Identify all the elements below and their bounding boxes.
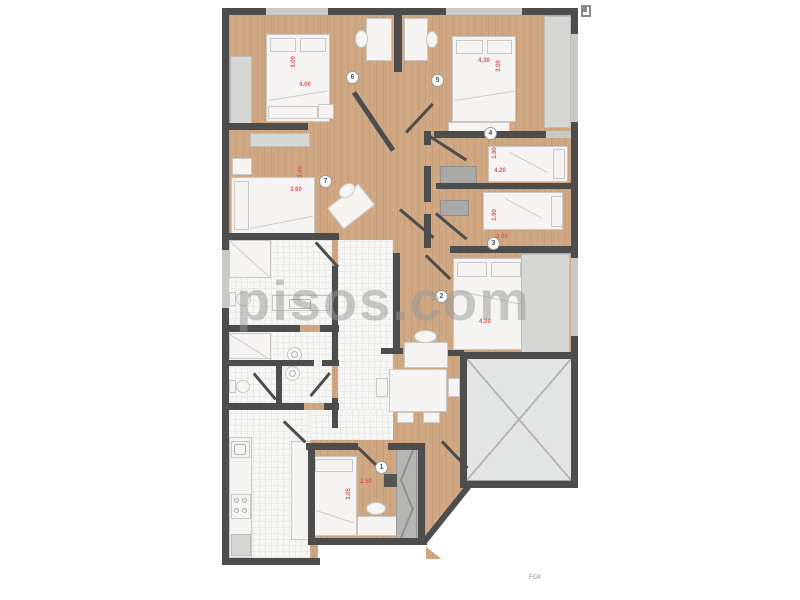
- window: [266, 8, 328, 15]
- washbasin: [285, 366, 300, 381]
- wall: [450, 246, 572, 253]
- wall: [222, 123, 308, 130]
- toilet-tank: [229, 292, 236, 306]
- window: [571, 258, 578, 336]
- wall: [418, 443, 425, 545]
- room-6-number-badge: 6: [346, 71, 359, 84]
- chair: [448, 378, 460, 397]
- pillow: [551, 196, 563, 227]
- wardrobe: [230, 56, 252, 124]
- window: [571, 34, 578, 122]
- room-5-width-dim: 4.30: [471, 57, 497, 65]
- wall: [222, 558, 320, 565]
- desk: [404, 18, 428, 61]
- room-7-width-dim: 3.60: [283, 186, 309, 194]
- window: [446, 8, 522, 15]
- room-7-depth-dim: 3.45: [297, 159, 305, 185]
- nightstand: [232, 158, 252, 175]
- window: [546, 131, 571, 138]
- wardrobe: [396, 445, 417, 539]
- chair: [397, 412, 414, 423]
- chair: [366, 502, 386, 515]
- kitchen-sink: [231, 441, 250, 458]
- pillow: [234, 181, 249, 230]
- wall: [388, 443, 422, 450]
- room-4-depth-dim: 1.90: [491, 140, 499, 166]
- outside-area: [222, 565, 578, 600]
- room-1-number-badge: 1: [375, 461, 388, 474]
- chair: [423, 412, 440, 423]
- pillow: [315, 459, 353, 472]
- dining-table: [389, 369, 447, 412]
- wall: [436, 183, 572, 189]
- ottoman: [318, 104, 334, 119]
- wall: [394, 8, 402, 72]
- room-5-depth-dim: 3.00: [495, 53, 503, 79]
- north-mark-icon: [581, 5, 591, 17]
- room-4-number-badge: 4: [484, 127, 497, 140]
- pillow: [553, 149, 565, 179]
- wall: [222, 403, 304, 410]
- wall: [308, 538, 427, 545]
- terrace-lightwell: [466, 358, 572, 481]
- wall: [324, 403, 339, 410]
- toilet: [236, 380, 250, 393]
- window: [222, 250, 229, 308]
- kitchen-cabinet: [231, 534, 251, 556]
- room-5-number-badge: 5: [431, 74, 444, 87]
- cooktop: [231, 494, 251, 519]
- wall: [306, 443, 358, 450]
- wall: [448, 350, 464, 356]
- room-6-width-dim: 4.00: [292, 81, 318, 89]
- room-7-number-badge: 7: [319, 175, 332, 188]
- plan-code-label: FG4: [529, 575, 541, 581]
- chair: [426, 31, 438, 48]
- shower: [229, 333, 271, 359]
- desk: [357, 516, 399, 536]
- wall: [424, 166, 431, 202]
- wall: [222, 233, 339, 240]
- bed-bench: [268, 106, 318, 119]
- toilet-tank: [229, 380, 236, 393]
- room-4-width-dim: 4.20: [487, 167, 513, 175]
- pillow: [456, 40, 483, 54]
- tv-unit: [384, 474, 397, 487]
- room-3-depth-dim: 1.90: [491, 202, 499, 228]
- room-3-width-dim: 3.00: [489, 233, 515, 241]
- wall: [322, 360, 339, 366]
- wardrobe: [544, 16, 571, 128]
- desk: [404, 342, 448, 368]
- wall: [308, 450, 315, 545]
- wall: [460, 352, 572, 359]
- closet: [440, 200, 469, 216]
- wall: [222, 360, 314, 366]
- pillow: [487, 40, 512, 54]
- hallway-floor-2: [310, 410, 393, 440]
- room-6-depth-dim: 3.00: [290, 49, 298, 75]
- wardrobe: [250, 133, 310, 147]
- desk: [366, 18, 392, 61]
- wall: [381, 348, 403, 354]
- floor-plan: 6 5 4 7 3 2 1 4.00 3.00 4.30 3.00 1.90 4…: [0, 0, 800, 600]
- pillow: [300, 38, 326, 52]
- room-1-width-dim: 2.50: [353, 478, 379, 486]
- chair: [355, 30, 368, 48]
- wall: [276, 366, 282, 406]
- chair: [376, 378, 388, 397]
- wall: [460, 481, 578, 488]
- room-1-depth-dim: 3.05: [345, 481, 353, 507]
- watermark: pisos.com: [236, 268, 531, 333]
